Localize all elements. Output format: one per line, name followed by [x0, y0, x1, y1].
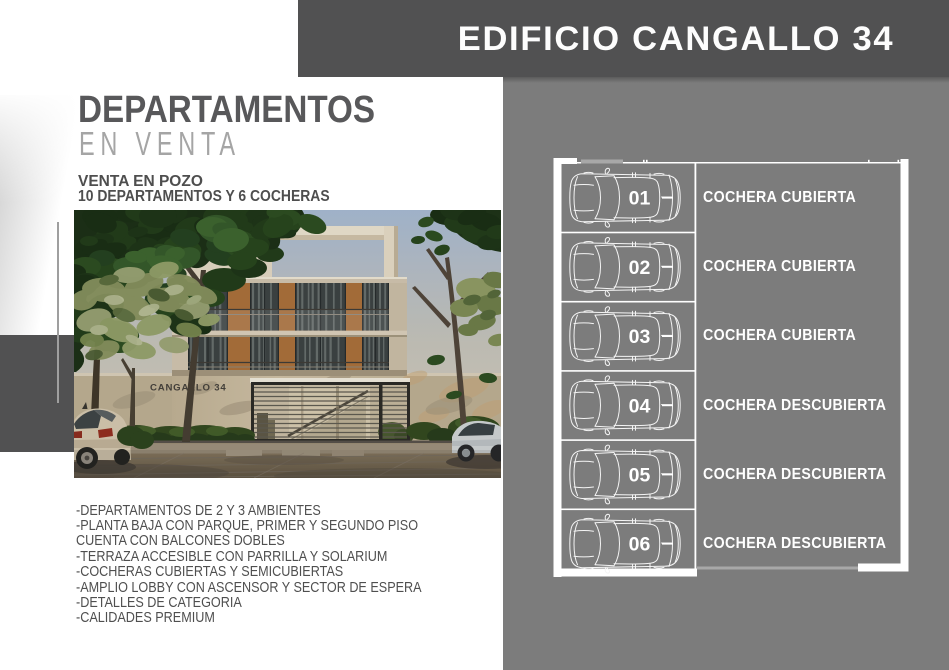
svg-text:01: 01: [629, 188, 651, 210]
svg-text:05: 05: [629, 465, 651, 487]
svg-text:02: 02: [629, 257, 651, 279]
svg-text:04: 04: [629, 395, 651, 417]
svg-text:03: 03: [629, 326, 651, 348]
svg-text:06: 06: [629, 534, 651, 556]
